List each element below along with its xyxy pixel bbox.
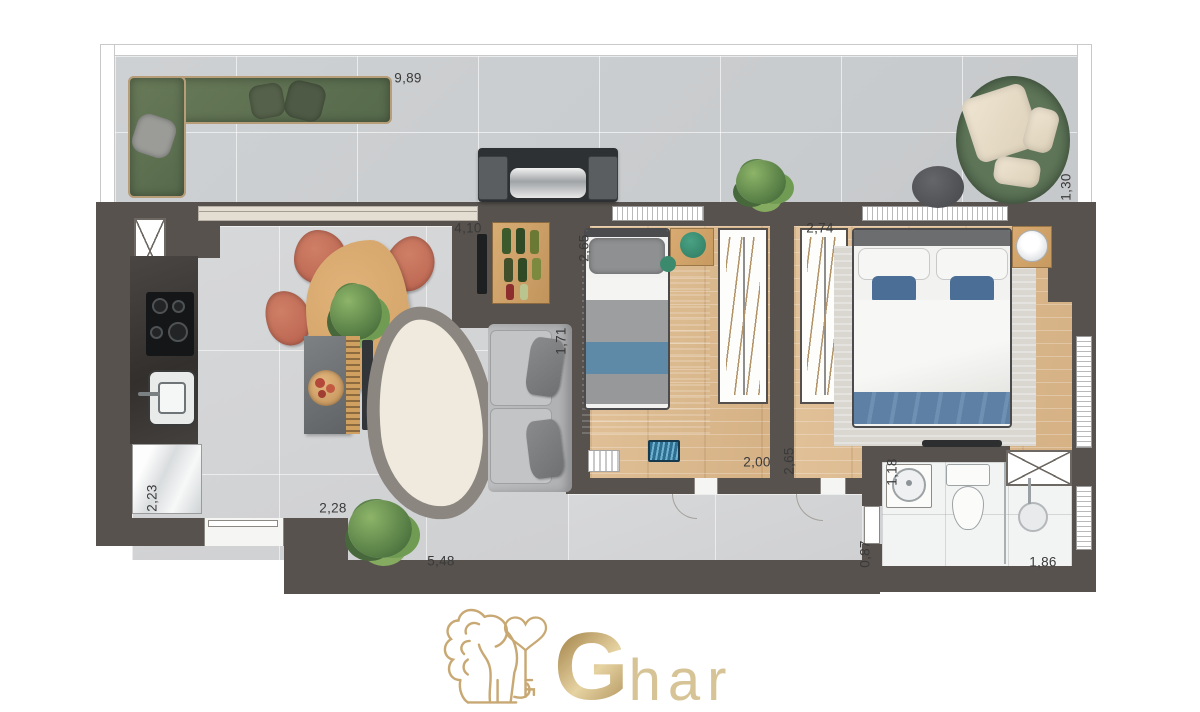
wall-bathroom-left-upper [862,446,882,506]
fruit-3 [318,390,326,398]
balcony-railing-left [100,44,115,212]
bedroom1-door-opening [694,478,718,494]
fruit-2 [326,384,335,393]
dim-balcony-length: 9,89 [394,71,421,86]
kitchen-sink-basin [158,382,186,414]
bathroom-faucet [906,480,912,486]
bbq-grill-side-right [588,156,618,200]
wine-bottle-1 [502,228,511,254]
bedroom2-side-window [1076,336,1092,448]
shower-glass-partition [1004,462,1006,564]
bedroom1-mat [648,440,680,462]
bed1-pillow [589,238,664,274]
lion-with-heart-key-icon [436,600,548,708]
island-wood-slats [346,336,360,434]
dim-balcony-depth: 1,30 [1059,173,1074,200]
bedroom2-window [862,206,1008,221]
bed2-duvet [854,300,1010,392]
burner-1 [152,298,168,314]
dim-kitchen-width: 2,28 [319,501,346,516]
wine-bottle-2 [516,228,525,254]
refrigerator [132,444,202,514]
dim-bath-entry: 0,87 [858,540,873,567]
bed2-runner [854,392,1010,424]
table-centerpiece-plant [330,284,382,340]
dim-bedroom1-width: 2,65 [577,234,592,261]
logo-letter-g: G [554,627,629,708]
bed1-blanket-foot [586,374,668,404]
shower-drain [1018,502,1048,532]
entry-door-leaf [208,520,278,527]
wall-bottom-left [96,518,204,546]
burner-3 [150,326,163,339]
dim-sofa-wall: 1,71 [554,327,569,354]
dim-living-width: 4,10 [454,221,481,236]
shower-head [1028,478,1031,504]
balcony-sliding-door-track [198,206,478,221]
bed2-headboard [854,230,1010,246]
burner-2 [172,300,185,313]
logo-text-har: har [629,653,734,708]
balcony-pouf [912,166,964,208]
ghar-logo: G har [436,598,796,708]
dim-bath-vanity: 1,18 [885,458,900,485]
wine-bottle-3 [530,230,539,254]
balcony-plant [736,160,786,204]
wall-bathroom-bottom [880,566,1096,592]
dim-living-length: 5,48 [427,554,454,569]
bathroom-window [1076,486,1092,550]
bedroom2-lamp [1016,230,1048,262]
tv-panel [477,234,487,294]
bedroom1-single-bed [584,228,670,410]
bedroom2-console [922,440,1002,447]
bedroom1-shoe-rack [588,450,620,472]
bedroom1-window [612,206,704,221]
balcony-railing-top [100,44,1092,56]
wine-bottle-8 [520,284,528,300]
burner-4 [168,322,188,342]
wall-left [96,202,132,546]
bed1-sheet [586,278,668,300]
bathroom-door-leaf [864,506,880,544]
dim-hall-depth: 2,65 [782,447,797,474]
dim-shower-width: 1,86 [1029,555,1056,570]
bedroom1-pouf [660,256,676,272]
bed1-blanket-blue [586,342,668,374]
bbq-grill-side-left [478,156,508,200]
bedroom1-wardrobe [718,228,768,404]
bedroom1-stool [680,232,706,258]
bed1-blanket-gray [586,300,668,342]
wine-bottle-6 [532,258,541,280]
fruit-1 [315,378,325,388]
balcony-pillow-olive-1 [247,81,286,120]
balcony-railing-right [1077,44,1092,212]
bed1-headboard [586,230,668,237]
hallway-floor [568,494,882,560]
floor-plan-render: 9,89 4,10 2,65 2,74 1,30 1,71 2,23 2,28 … [0,0,1200,712]
dim-bedroom1-length: 2,00 [743,455,770,470]
wall-entry-pier [284,518,348,594]
bathroom-shaft-box [1006,450,1072,486]
bedroom2-double-bed [852,228,1012,428]
wine-bottle-4 [504,258,513,282]
dim-bedroom2-width: 2,74 [806,221,833,236]
wine-bottle-5 [518,258,527,282]
wine-bottle-7 [506,284,514,300]
toilet-tank [946,464,990,486]
bbq-grill-hood [510,168,586,198]
bedroom2-door-opening [820,478,846,494]
dim-kitchen-depth: 2,23 [145,484,160,511]
living-plant [348,500,412,558]
kitchen-faucet [138,392,160,396]
